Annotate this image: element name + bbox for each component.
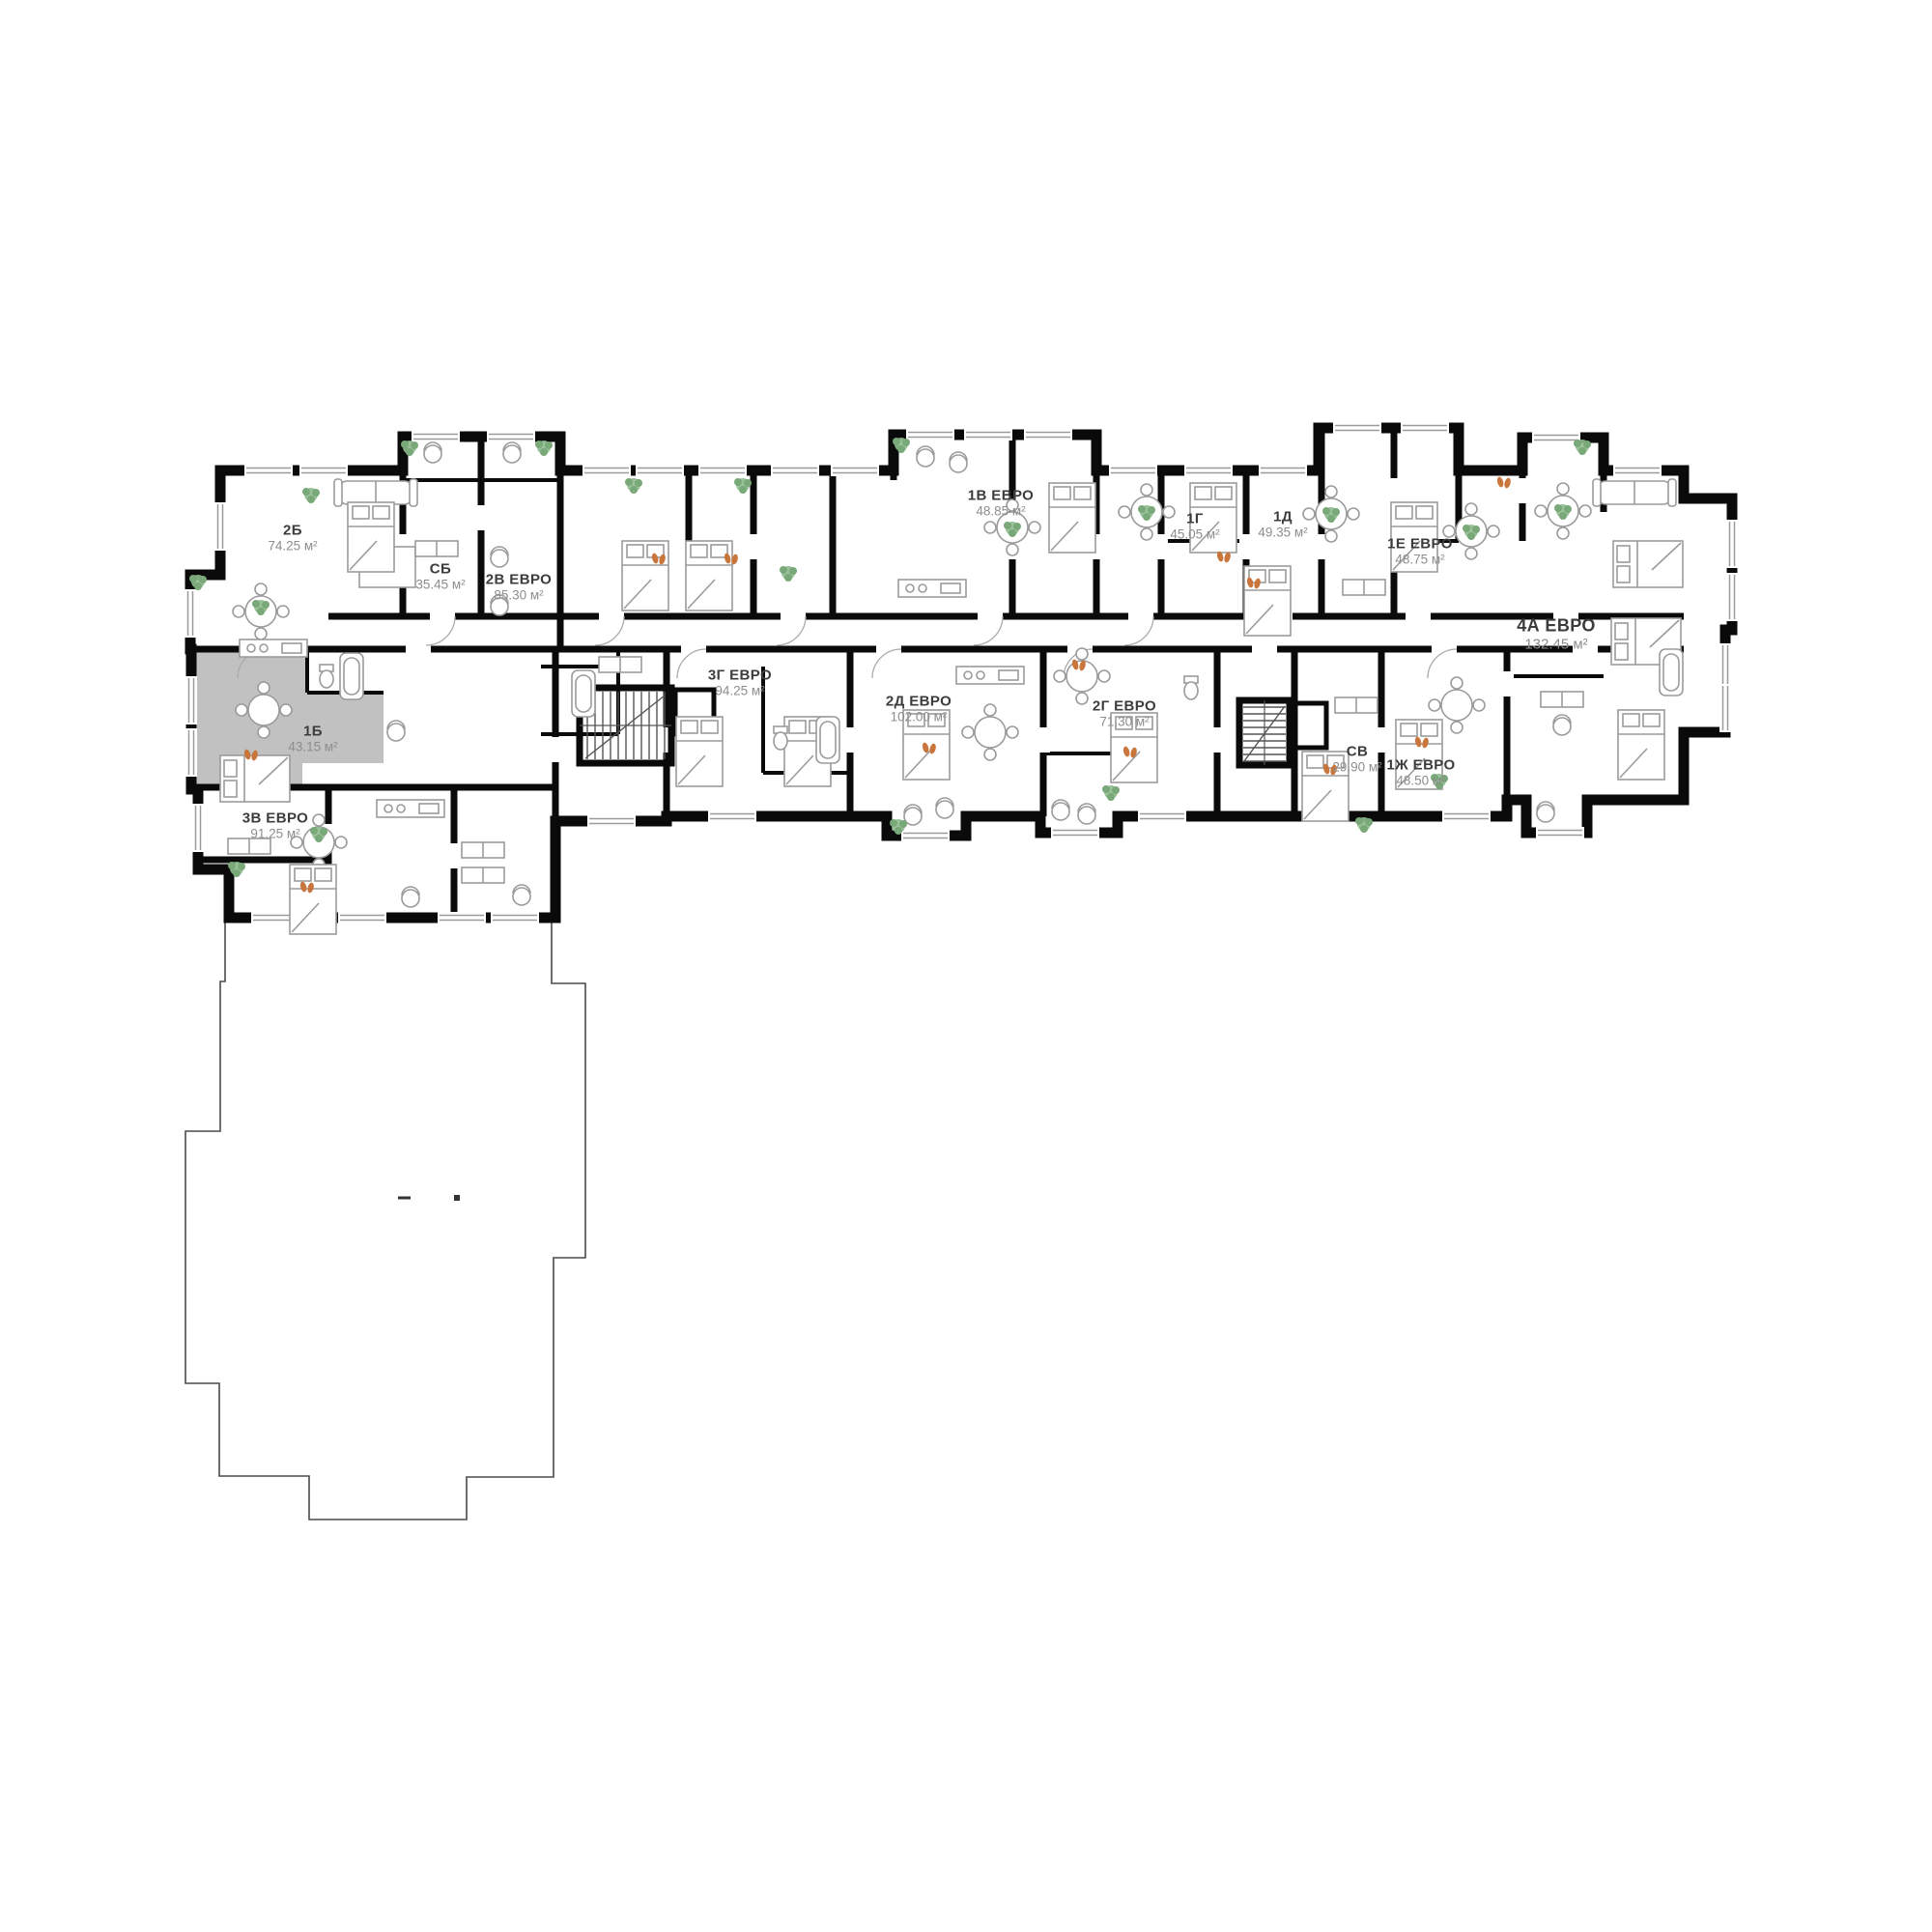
- terrace-outline: [185, 923, 585, 1520]
- unit-area: 48.75 м²: [1387, 553, 1453, 568]
- unit-area: 94.25 м²: [708, 684, 772, 699]
- unit-area: 29.90 м²: [1332, 760, 1381, 776]
- unit-name: 2Б: [268, 522, 317, 538]
- unit-label-2d-evro[interactable]: 2Д ЕВРО 102.00 м²: [886, 693, 952, 724]
- unit-label-sb[interactable]: СБ 35.45 м²: [415, 560, 465, 592]
- unit-label-1g[interactable]: 1Г 45.05 м²: [1170, 510, 1219, 542]
- unit-area: 49.35 м²: [1258, 526, 1307, 541]
- floor-plan-svg: [0, 0, 1932, 1932]
- unit-area: 43.15 м²: [288, 740, 337, 755]
- elevator-right: [1293, 703, 1326, 748]
- unit-name: 1Д: [1258, 508, 1307, 525]
- unit-label-2b[interactable]: 2Б 74.25 м²: [268, 522, 317, 554]
- unit-label-1b[interactable]: 1Б 43.15 м²: [288, 723, 337, 754]
- unit-label-4a-evro[interactable]: 4А ЕВРО 132.45 м²: [1517, 616, 1596, 654]
- floor-plan-page: 2Б 74.25 м² СБ 35.45 м² 2В ЕВРО 85.30 м²…: [0, 0, 1932, 1932]
- unit-label-2v-evro[interactable]: 2В ЕВРО 85.30 м²: [486, 571, 552, 603]
- unit-area: 48.85 м²: [968, 504, 1034, 520]
- unit-label-2g-evro[interactable]: 2Г ЕВРО 71.30 м²: [1093, 697, 1156, 729]
- unit-name: 3В ЕВРО: [242, 810, 308, 826]
- unit-name: 2Д ЕВРО: [886, 693, 952, 709]
- unit-name: 4А ЕВРО: [1517, 616, 1596, 637]
- unit-area: 85.30 м²: [486, 588, 552, 604]
- unit-name: СВ: [1332, 743, 1381, 759]
- unit-name: 1Ж ЕВРО: [1386, 756, 1455, 773]
- unit-area: 35.45 м²: [415, 578, 465, 593]
- unit-area: 91.25 м²: [242, 827, 308, 842]
- unit-label-3v-evro[interactable]: 3В ЕВРО 91.25 м²: [242, 810, 308, 841]
- unit-label-1d[interactable]: 1Д 49.35 м²: [1258, 508, 1307, 540]
- unit-name: 1Е ЕВРО: [1387, 535, 1453, 552]
- unit-label-1zh-evro[interactable]: 1Ж ЕВРО 48.50 м²: [1386, 756, 1455, 788]
- unit-label-sv[interactable]: СВ 29.90 м²: [1332, 743, 1381, 775]
- unit-label-1e-evro[interactable]: 1Е ЕВРО 48.75 м²: [1387, 535, 1453, 567]
- staircase-right: [1239, 700, 1290, 765]
- unit-name: 1В ЕВРО: [968, 487, 1034, 503]
- unit-area: 102.00 м²: [886, 710, 952, 725]
- unit-label-3g-evro[interactable]: 3Г ЕВРО 94.25 м²: [708, 667, 772, 698]
- unit-name: 1Б: [288, 723, 337, 739]
- unit-area: 48.50 м²: [1386, 774, 1455, 789]
- unit-name: 2Г ЕВРО: [1093, 697, 1156, 714]
- terrace-mark-dot: [454, 1195, 460, 1201]
- unit-area: 132.45 м²: [1517, 636, 1596, 653]
- unit-label-1v-evro[interactable]: 1В ЕВРО 48.85 м²: [968, 487, 1034, 519]
- unit-area: 71.30 м²: [1093, 715, 1156, 730]
- furniture-layer: [220, 442, 1683, 934]
- unit-name: 2В ЕВРО: [486, 571, 552, 587]
- unit-area: 74.25 м²: [268, 539, 317, 554]
- unit-name: 1Г: [1170, 510, 1219, 526]
- unit-area: 45.05 м²: [1170, 527, 1219, 543]
- unit-name: СБ: [415, 560, 465, 577]
- unit-name: 3Г ЕВРО: [708, 667, 772, 683]
